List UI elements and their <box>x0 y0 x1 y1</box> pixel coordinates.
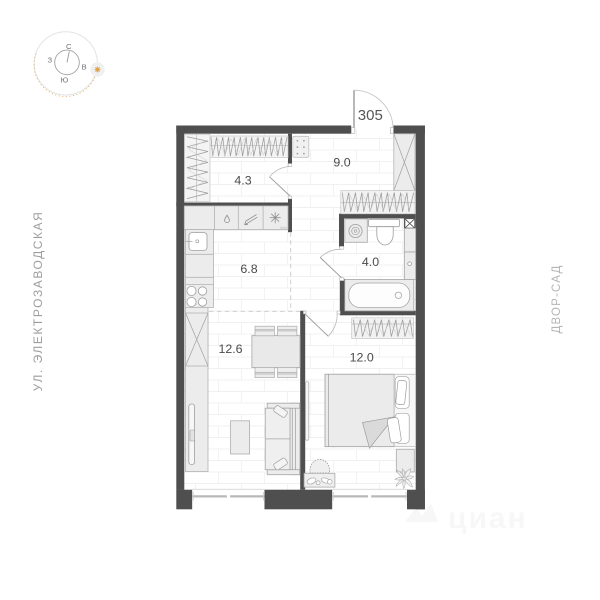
svg-text:В: В <box>82 63 87 72</box>
svg-text:12.6: 12.6 <box>218 342 242 356</box>
svg-text:С: С <box>66 42 72 51</box>
svg-text:4.3: 4.3 <box>234 174 251 188</box>
svg-text:305: 305 <box>358 107 383 124</box>
svg-text:12.0: 12.0 <box>350 350 374 364</box>
svg-text:Ю: Ю <box>61 75 69 84</box>
svg-text:циан: циан <box>448 502 528 535</box>
svg-text:4.0: 4.0 <box>362 255 379 269</box>
svg-text:ДВОР-САД: ДВОР-САД <box>551 264 563 333</box>
svg-text:З: З <box>48 56 53 65</box>
svg-text:9.0: 9.0 <box>333 156 350 170</box>
svg-text:6.8: 6.8 <box>240 262 257 276</box>
svg-text:УЛ. ЭЛЕКТРОЗАВОДСКАЯ: УЛ. ЭЛЕКТРОЗАВОДСКАЯ <box>31 211 45 392</box>
